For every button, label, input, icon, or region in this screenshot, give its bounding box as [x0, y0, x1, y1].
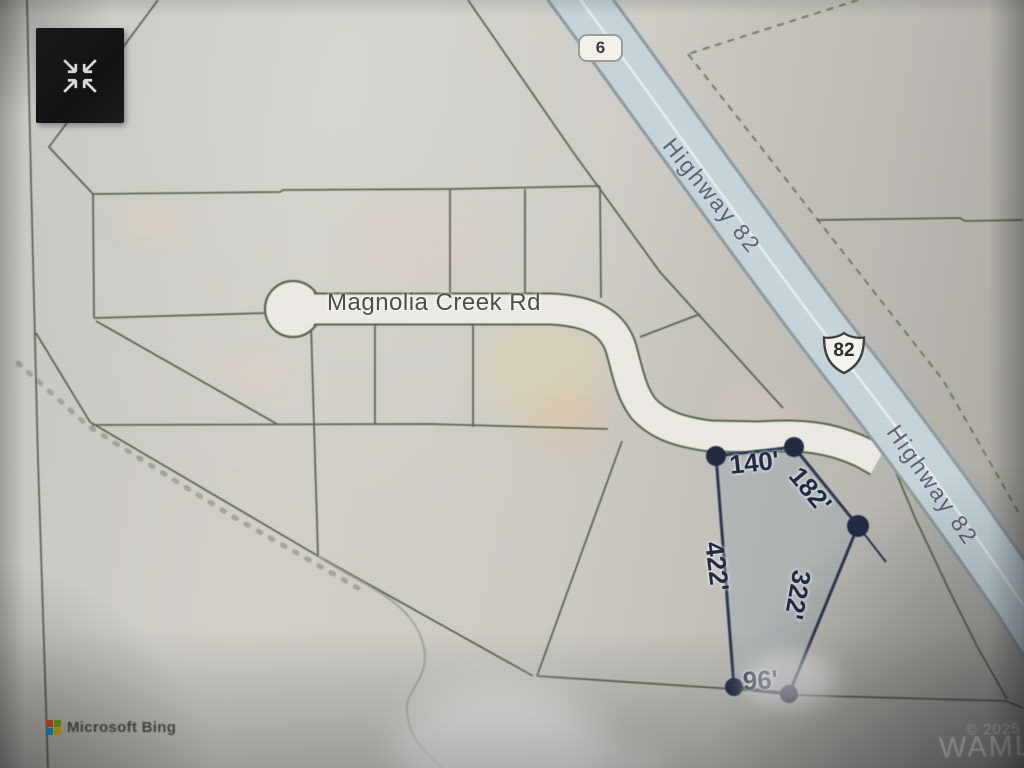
ms-logo-yellow-square — [54, 728, 61, 735]
parcel-dim-left: 422' — [698, 540, 735, 593]
route-6-number: 6 — [596, 38, 605, 58]
map-canvas[interactable]: 6 82 Magnolia Creek Rd Highway 82 Highwa… — [0, 0, 1024, 768]
collapse-arrows-icon — [61, 57, 99, 95]
microsoft-logo-icon — [46, 720, 61, 735]
parcel-dim-top: 140' — [728, 445, 781, 481]
ms-logo-green-square — [54, 720, 61, 727]
provider-label: Microsoft Bing — [67, 719, 176, 736]
parcel-dim-bottom: 96' — [742, 664, 779, 697]
ms-logo-red-square — [46, 720, 53, 727]
us-route-82-shield: 82 — [821, 331, 867, 375]
magnolia-creek-rd-label: Magnolia Creek Rd — [327, 289, 541, 317]
bing-attribution: Microsoft Bing — [46, 719, 176, 736]
watermark-label: WAMLS — [939, 729, 1024, 765]
collapse-button[interactable] — [36, 28, 124, 123]
ms-logo-blue-square — [46, 728, 53, 735]
route-82-number: 82 — [821, 340, 867, 362]
creek-line — [318, 556, 442, 768]
dotted-trail — [18, 363, 358, 588]
route-6-shield: 6 — [578, 34, 623, 62]
plat-linework — [0, 0, 1024, 768]
